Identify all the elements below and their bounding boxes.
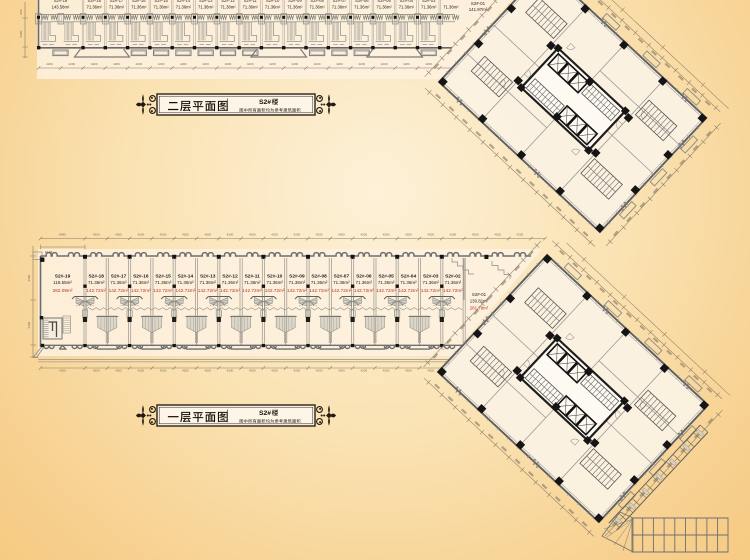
svg-text:S2#-08: S2#-08 xyxy=(310,0,324,3)
svg-text:142.72m²: 142.72m² xyxy=(153,288,173,293)
svg-text:S2#-10: S2#-10 xyxy=(267,274,283,280)
svg-text:S2#-11: S2#-11 xyxy=(245,274,261,280)
svg-text:4200: 4200 xyxy=(160,233,167,237)
svg-text:600: 600 xyxy=(19,9,23,14)
svg-text:4200: 4200 xyxy=(227,233,234,237)
svg-text:71.36m²: 71.36m² xyxy=(177,280,194,285)
svg-text:4200: 4200 xyxy=(249,369,256,373)
svg-text:4200: 4200 xyxy=(472,233,479,237)
svg-text:71.36m²: 71.36m² xyxy=(266,280,283,285)
svg-text:5400: 5400 xyxy=(27,321,31,328)
svg-text:71.36m²: 71.36m² xyxy=(176,5,192,10)
svg-text:S2#-04: S2#-04 xyxy=(400,0,414,3)
svg-text:S2#-16: S2#-16 xyxy=(132,0,146,3)
svg-text:4200: 4200 xyxy=(182,233,189,237)
svg-text:4200: 4200 xyxy=(160,369,167,373)
svg-text:S2#-18: S2#-18 xyxy=(87,0,101,3)
svg-text:71.36m²: 71.36m² xyxy=(220,5,236,10)
svg-text:S2#-13: S2#-13 xyxy=(199,0,213,3)
svg-text:4200: 4200 xyxy=(381,62,388,66)
svg-text:71.36m²: 71.36m² xyxy=(287,5,303,10)
svg-text:4200: 4200 xyxy=(383,233,390,237)
svg-text:S2#-05: S2#-05 xyxy=(377,0,391,3)
svg-text:S2#-18: S2#-18 xyxy=(88,274,104,280)
svg-text:4200: 4200 xyxy=(360,233,367,237)
svg-text:S2#-02: S2#-02 xyxy=(445,274,461,280)
svg-text:71.36m²: 71.36m² xyxy=(354,5,370,10)
svg-text:4200: 4200 xyxy=(59,369,66,373)
svg-text:4200: 4200 xyxy=(249,233,256,237)
svg-text:S2#-17: S2#-17 xyxy=(111,274,127,280)
svg-text:71.36m²: 71.36m² xyxy=(199,280,216,285)
svg-text:142.72m²: 142.72m² xyxy=(265,288,285,293)
svg-text:4200: 4200 xyxy=(338,233,345,237)
svg-text:142.72m²: 142.72m² xyxy=(86,288,106,293)
svg-text:262.09m²: 262.09m² xyxy=(53,288,73,293)
svg-text:S2#-03: S2#-03 xyxy=(422,0,436,3)
svg-text:S2#-07: S2#-07 xyxy=(333,0,347,3)
svg-text:S2#-10: S2#-10 xyxy=(266,0,280,3)
svg-text:143.58m²: 143.58m² xyxy=(52,5,70,10)
svg-text:S2#-17: S2#-17 xyxy=(110,0,124,3)
svg-text:71.36m²: 71.36m² xyxy=(399,5,415,10)
svg-text:130.81m²: 130.81m² xyxy=(470,299,489,304)
svg-text:71.36m²: 71.36m² xyxy=(153,5,169,10)
svg-text:141.97m²: 141.97m² xyxy=(469,7,488,12)
svg-text:71.36m²: 71.36m² xyxy=(155,280,172,285)
svg-text:4200: 4200 xyxy=(135,62,142,66)
svg-text:71.36m²: 71.36m² xyxy=(109,5,125,10)
svg-text:4200: 4200 xyxy=(494,233,501,237)
svg-text:71.36m²: 71.36m² xyxy=(243,5,259,10)
svg-text:4200: 4200 xyxy=(93,369,100,373)
svg-text:S2#: S2# xyxy=(259,99,271,106)
svg-text:S2#-19: S2#-19 xyxy=(54,0,68,3)
svg-text:4200: 4200 xyxy=(427,233,434,237)
svg-text:4200: 4200 xyxy=(271,369,278,373)
svg-text:142.72m²: 142.72m² xyxy=(354,288,374,293)
svg-text:S2#-15: S2#-15 xyxy=(155,274,171,280)
svg-text:142.72m²: 142.72m² xyxy=(131,288,151,293)
svg-text:S2#-06: S2#-06 xyxy=(356,274,372,280)
svg-text:4200: 4200 xyxy=(137,233,144,237)
svg-text:4200: 4200 xyxy=(182,369,189,373)
svg-text:4200: 4200 xyxy=(403,62,410,66)
svg-text:S2#-09: S2#-09 xyxy=(288,0,302,3)
svg-text:142.72m²: 142.72m² xyxy=(287,288,307,293)
svg-text:5400: 5400 xyxy=(19,30,23,37)
svg-text:4200: 4200 xyxy=(158,62,165,66)
svg-text:4200: 4200 xyxy=(225,62,232,66)
svg-text:4200: 4200 xyxy=(202,62,209,66)
svg-text:142.72m²: 142.72m² xyxy=(242,288,262,293)
svg-text:4200: 4200 xyxy=(247,62,254,66)
svg-text:4200: 4200 xyxy=(294,369,301,373)
svg-text:S2#-05: S2#-05 xyxy=(378,274,394,280)
svg-text:142.72m²: 142.72m² xyxy=(331,288,351,293)
svg-text:71.36m²: 71.36m² xyxy=(445,280,462,285)
svg-text:4200: 4200 xyxy=(425,62,432,66)
svg-text:4200: 4200 xyxy=(271,233,278,237)
svg-text:71.36m²: 71.36m² xyxy=(244,280,261,285)
svg-text:8400: 8400 xyxy=(59,233,66,237)
svg-text:4200: 4200 xyxy=(383,369,390,373)
svg-text:S2#: S2# xyxy=(259,410,271,417)
svg-text:71.36m²: 71.36m² xyxy=(110,280,127,285)
svg-text:4200: 4200 xyxy=(113,62,120,66)
svg-text:142.72m²: 142.72m² xyxy=(220,288,240,293)
svg-text:71.36m²: 71.36m² xyxy=(88,280,105,285)
svg-text:281.78m²: 281.78m² xyxy=(470,306,489,311)
svg-text:71.36m²: 71.36m² xyxy=(333,280,350,285)
svg-text:4200: 4200 xyxy=(338,369,345,373)
svg-text:142.72m²: 142.72m² xyxy=(175,288,195,293)
svg-text:71.36m²: 71.36m² xyxy=(400,280,417,285)
svg-text:4200: 4200 xyxy=(336,62,343,66)
svg-text:71.36m²: 71.36m² xyxy=(421,5,437,10)
svg-text:142.72m²: 142.72m² xyxy=(421,288,441,293)
svg-text:71.36m²: 71.36m² xyxy=(311,280,328,285)
svg-text:4200: 4200 xyxy=(316,369,323,373)
svg-text:4200: 4200 xyxy=(269,62,276,66)
svg-text:4200: 4200 xyxy=(69,62,76,66)
svg-text:118.55m²: 118.55m² xyxy=(53,280,72,285)
svg-text:142.72m²: 142.72m² xyxy=(398,288,418,293)
svg-text:4200: 4200 xyxy=(204,233,211,237)
svg-text:S2#-04: S2#-04 xyxy=(401,274,417,280)
svg-text:S2#-08: S2#-08 xyxy=(311,274,327,280)
svg-text:71.36m²: 71.36m² xyxy=(133,280,150,285)
svg-text:S2#-13: S2#-13 xyxy=(200,274,216,280)
svg-text:S2#-12: S2#-12 xyxy=(222,274,238,280)
svg-text:4200: 4200 xyxy=(180,62,187,66)
svg-text:4200: 4200 xyxy=(405,369,412,373)
svg-text:S2#-01: S2#-01 xyxy=(472,292,487,297)
svg-text:71.36m²: 71.36m² xyxy=(222,280,239,285)
svg-text:142.72m²: 142.72m² xyxy=(376,288,396,293)
svg-text:142.72m²: 142.72m² xyxy=(198,288,218,293)
svg-text:S2#-14: S2#-14 xyxy=(177,0,191,3)
svg-text:71.36m²: 71.36m² xyxy=(131,5,147,10)
svg-text:S2#-09: S2#-09 xyxy=(289,274,305,280)
svg-text:142.72m²: 142.72m² xyxy=(443,288,463,293)
svg-text:S2#-16: S2#-16 xyxy=(133,274,149,280)
svg-text:71.36m²: 71.36m² xyxy=(309,5,325,10)
svg-text:4200: 4200 xyxy=(360,369,367,373)
svg-text:S2#-03: S2#-03 xyxy=(423,274,439,280)
svg-text:4200: 4200 xyxy=(405,233,412,237)
svg-text:71.36m²: 71.36m² xyxy=(289,280,306,285)
svg-text:4200: 4200 xyxy=(46,62,53,66)
svg-text:S2#-14: S2#-14 xyxy=(178,274,194,280)
svg-text:4200: 4200 xyxy=(93,233,100,237)
svg-text:142.72m²: 142.72m² xyxy=(309,288,329,293)
svg-text:71.36m²: 71.36m² xyxy=(198,5,214,10)
svg-text:S2#-06: S2#-06 xyxy=(355,0,369,3)
svg-text:4200: 4200 xyxy=(294,233,301,237)
svg-text:71.36m²: 71.36m² xyxy=(378,280,395,285)
svg-text:4200: 4200 xyxy=(292,62,299,66)
svg-text:4200: 4200 xyxy=(91,62,98,66)
svg-text:S2#-12: S2#-12 xyxy=(221,0,235,3)
svg-text:S2#-15: S2#-15 xyxy=(154,0,168,3)
svg-text:71.36m²: 71.36m² xyxy=(356,280,373,285)
svg-text:9600: 9600 xyxy=(27,274,31,281)
svg-text:71.36m²: 71.36m² xyxy=(443,5,459,10)
svg-text:S2#-11: S2#-11 xyxy=(244,0,258,3)
svg-text:71.36m²: 71.36m² xyxy=(265,5,281,10)
svg-text:4200: 4200 xyxy=(204,369,211,373)
svg-text:71.36m²: 71.36m² xyxy=(87,5,103,10)
svg-text:71.36m²: 71.36m² xyxy=(332,5,348,10)
svg-text:142.72m²: 142.72m² xyxy=(109,288,129,293)
svg-text:4200: 4200 xyxy=(316,233,323,237)
svg-text:4200: 4200 xyxy=(115,233,122,237)
svg-text:4200: 4200 xyxy=(227,369,234,373)
svg-text:4200: 4200 xyxy=(427,369,434,373)
svg-text:S2#-19: S2#-19 xyxy=(55,274,71,280)
svg-text:4200: 4200 xyxy=(314,62,321,66)
svg-text:4200: 4200 xyxy=(517,233,524,237)
svg-text:4200: 4200 xyxy=(358,62,365,66)
svg-text:S2#-07: S2#-07 xyxy=(334,274,350,280)
svg-text:71.36m²: 71.36m² xyxy=(376,5,392,10)
svg-text:S2#-01: S2#-01 xyxy=(471,1,486,6)
svg-text:71.36m²: 71.36m² xyxy=(422,280,439,285)
svg-text:4200: 4200 xyxy=(450,233,457,237)
svg-text:4200: 4200 xyxy=(137,369,144,373)
svg-text:4200: 4200 xyxy=(115,369,122,373)
